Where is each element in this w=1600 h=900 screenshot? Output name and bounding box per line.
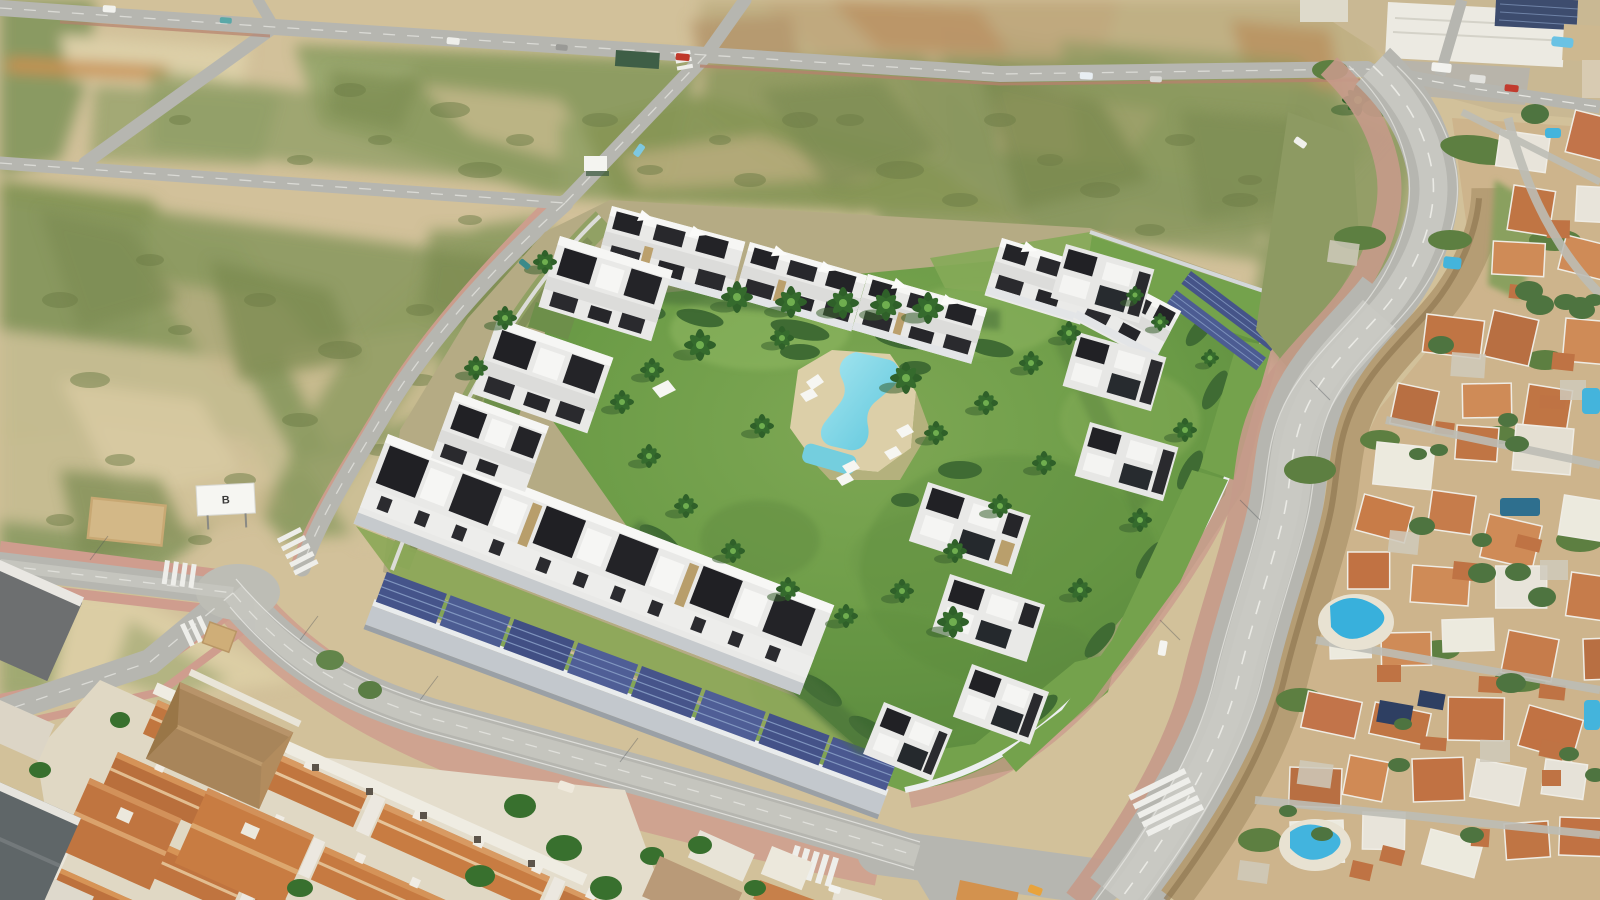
svg-text:B: B <box>222 494 231 506</box>
